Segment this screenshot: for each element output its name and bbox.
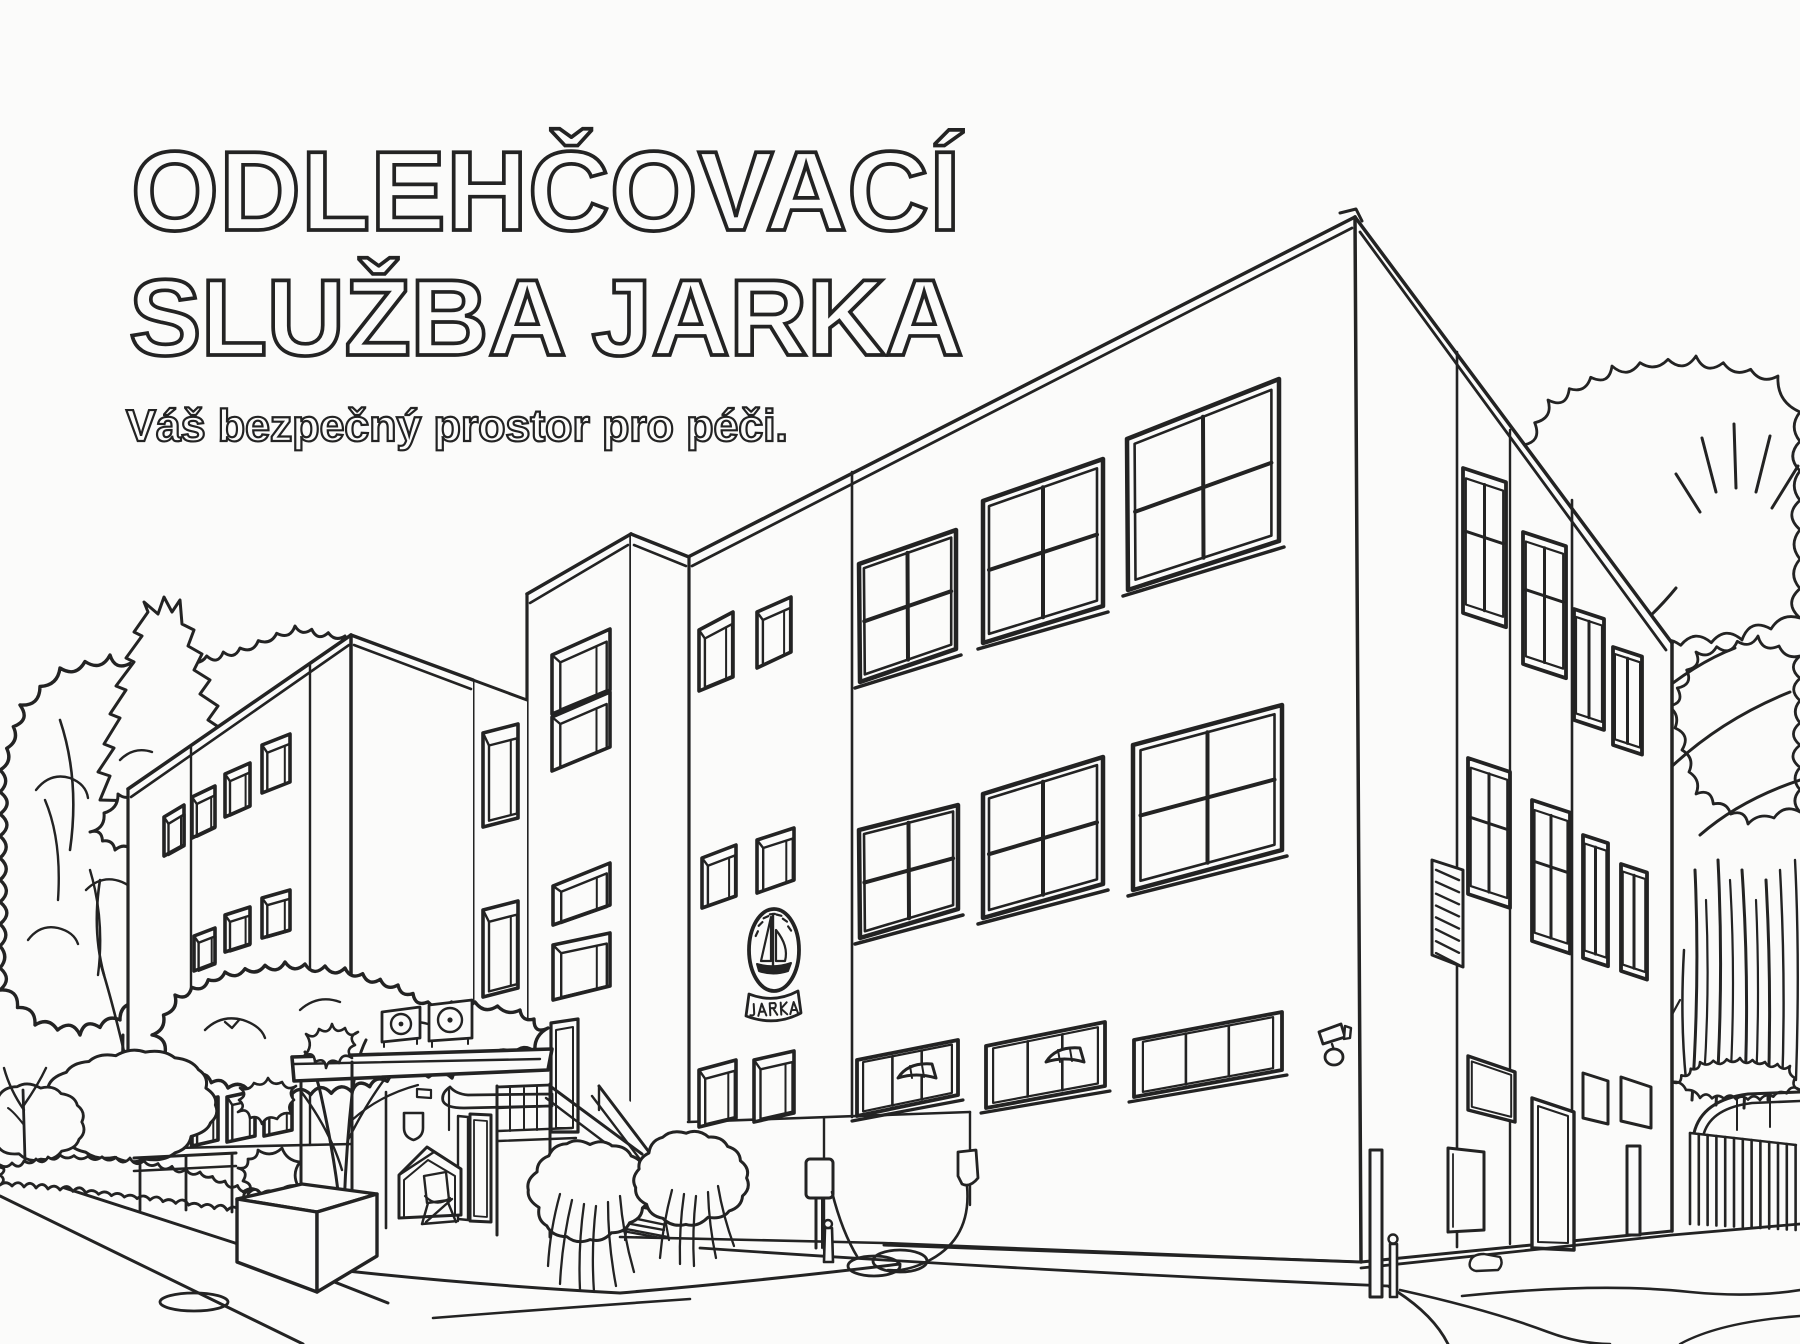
svg-text:SLUŽBA JARKA: SLUŽBA JARKA	[129, 257, 963, 378]
svg-text:ODLEHČOVACÍ: ODLEHČOVACÍ	[131, 128, 963, 254]
svg-text:Váš bezpečný prostor pro péči.: Váš bezpečný prostor pro péči.	[126, 400, 788, 451]
